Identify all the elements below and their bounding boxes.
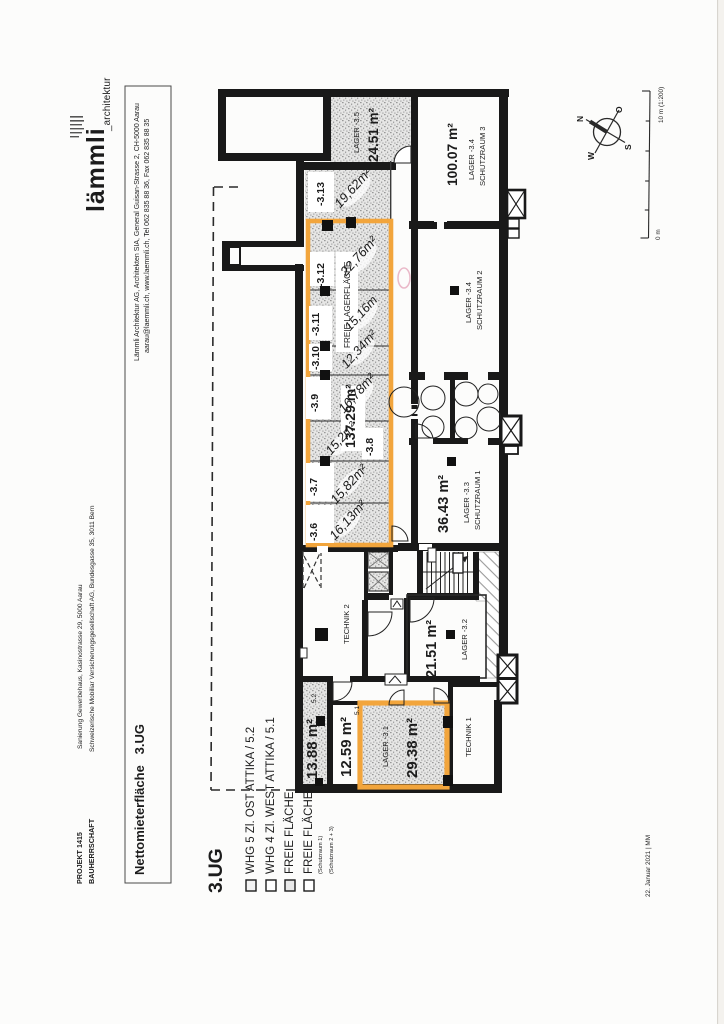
svg-text:-3.13: -3.13 [315, 182, 327, 206]
svg-text:Sanierung Gewerbehaus, Kasinos: Sanierung Gewerbehaus, Kasinostrasse 29,… [77, 584, 84, 749]
svg-text:LAGER -3.4: LAGER -3.4 [464, 282, 473, 323]
svg-text:N: N [575, 116, 585, 122]
svg-text:FREIE FLÄCHE: FREIE FLÄCHE [284, 791, 296, 874]
svg-text:BAUHERRSCHAFT: BAUHERRSCHAFT [87, 818, 96, 884]
svg-text:lämmli: lämmli [82, 127, 110, 212]
svg-text:TECHNIK 2: TECHNIK 2 [342, 604, 351, 644]
svg-text:Nettomieterfläche 3.UG: Nettomieterfläche 3.UG [132, 724, 147, 875]
svg-text:12.59 m²: 12.59 m² [338, 717, 355, 777]
svg-text:13.88 m²: 13.88 m² [304, 719, 321, 779]
svg-text:LAGER -3.2: LAGER -3.2 [460, 619, 469, 660]
svg-text:SCHUTZRAUM 2: SCHUTZRAUM 2 [475, 271, 484, 331]
svg-text:aarau@laemmli.ch, www.laemmli.: aarau@laemmli.ch, www.laemmli.ch, Tel 06… [144, 119, 151, 353]
svg-text:LAGER -3.1: LAGER -3.1 [381, 726, 390, 767]
svg-text:TECHNIK 1: TECHNIK 1 [464, 717, 473, 757]
svg-text:LAGER -3.5: LAGER -3.5 [352, 112, 361, 153]
svg-text:5.1: 5.1 [354, 706, 361, 715]
svg-text:-3.8: -3.8 [364, 438, 376, 456]
svg-text:Lämmli Architektur AG, Archite: Lämmli Architektur AG, Architekten SIA, … [134, 103, 141, 361]
svg-text:LAGER -3.3: LAGER -3.3 [462, 482, 471, 523]
svg-text:3.UG: 3.UG [205, 849, 227, 893]
svg-text:-3.6: -3.6 [308, 523, 320, 541]
svg-text:_architektur: _architektur [102, 77, 113, 132]
svg-text:(Schutzraum 1): (Schutzraum 1) [318, 836, 324, 874]
svg-text:LAGER -3.4: LAGER -3.4 [467, 139, 476, 180]
svg-text:10 m (1:200): 10 m (1:200) [658, 87, 665, 123]
svg-text:29.38 m²: 29.38 m² [404, 718, 421, 778]
svg-text:24.51 m²: 24.51 m² [366, 107, 381, 162]
svg-text:36.43 m²: 36.43 m² [436, 475, 452, 533]
svg-text:0 m: 0 m [655, 229, 662, 240]
svg-text:100.07 m²: 100.07 m² [445, 123, 460, 186]
svg-text:O: O [614, 106, 624, 113]
svg-text:WHG 4 Zl. WEST ATTIKA / 5.1: WHG 4 Zl. WEST ATTIKA / 5.1 [265, 717, 277, 874]
svg-text:5.2: 5.2 [311, 694, 318, 703]
svg-text:21.51 m²: 21.51 m² [424, 620, 440, 678]
svg-text:W: W [586, 151, 596, 160]
svg-text:S: S [623, 144, 633, 150]
svg-text:-3.7: -3.7 [308, 478, 320, 496]
svg-text:WHG 5 Zl. OST ATTIKA / 5.2: WHG 5 Zl. OST ATTIKA / 5.2 [245, 727, 257, 874]
svg-text:SCHUTZRAUM 3: SCHUTZRAUM 3 [478, 127, 487, 187]
svg-text:FREIE FLÄCHE: FREIE FLÄCHE [303, 791, 315, 874]
svg-text:22. Januar 2021 | MM: 22. Januar 2021 | MM [645, 835, 652, 897]
svg-text:PROJEKT 1415: PROJEKT 1415 [75, 832, 84, 884]
svg-text:SCHUTZRAUM 1: SCHUTZRAUM 1 [473, 471, 482, 531]
svg-text:-3.10: -3.10 [310, 346, 322, 370]
svg-text:-3.9: -3.9 [309, 394, 321, 412]
svg-text:-3.12: -3.12 [315, 263, 327, 287]
svg-text:Schweizerische Mobiliar Versic: Schweizerische Mobiliar Versicherungsges… [89, 505, 96, 752]
svg-text:(Schutzraum 2 + 3): (Schutzraum 2 + 3) [329, 826, 335, 874]
svg-text:-3.11: -3.11 [310, 312, 322, 336]
